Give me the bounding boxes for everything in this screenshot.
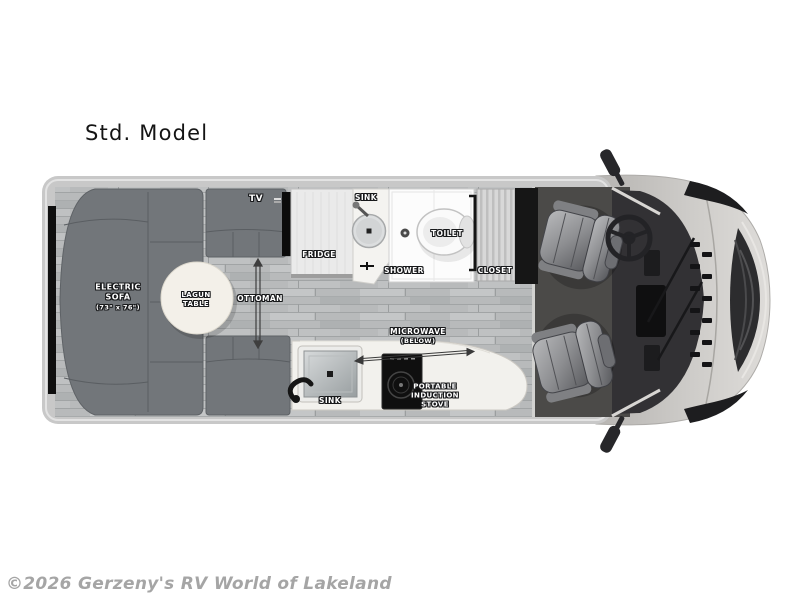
tv-label: TV: [249, 194, 263, 206]
kitchen-sink: [290, 346, 362, 403]
electric-sofa-label: ELECTRIC SOFA (73" x 76"): [95, 282, 141, 311]
fridge-label: FRIDGE: [302, 250, 336, 260]
screenshot-canvas: Std. Model: [0, 0, 800, 600]
wardrobe-cabinet: [515, 188, 538, 284]
closet-label: CLOSET: [478, 266, 512, 276]
lagun-table-label: LAGUN TABLE: [181, 291, 210, 309]
dealer-watermark: ©2026 Gerzeny's RV World of Lakeland: [6, 574, 392, 594]
ottoman-label: OTTOMAN: [237, 294, 283, 304]
tv-screen: [282, 192, 291, 256]
bath-sink-label: SINK: [355, 193, 377, 203]
stove-label: PORTABLE INDUCTION STOVE: [411, 382, 459, 409]
galley-sink-label: SINK: [319, 396, 341, 406]
tv-bracket-icon: [274, 198, 281, 200]
fridge: [291, 189, 353, 278]
dinette-bench-bottom: [206, 336, 290, 415]
toilet-label: TOILET: [431, 229, 463, 239]
microwave-label: MICROWAVE (BELOW): [390, 327, 446, 345]
rear-door: [48, 206, 56, 394]
shower-label: SHOWER: [384, 266, 424, 276]
